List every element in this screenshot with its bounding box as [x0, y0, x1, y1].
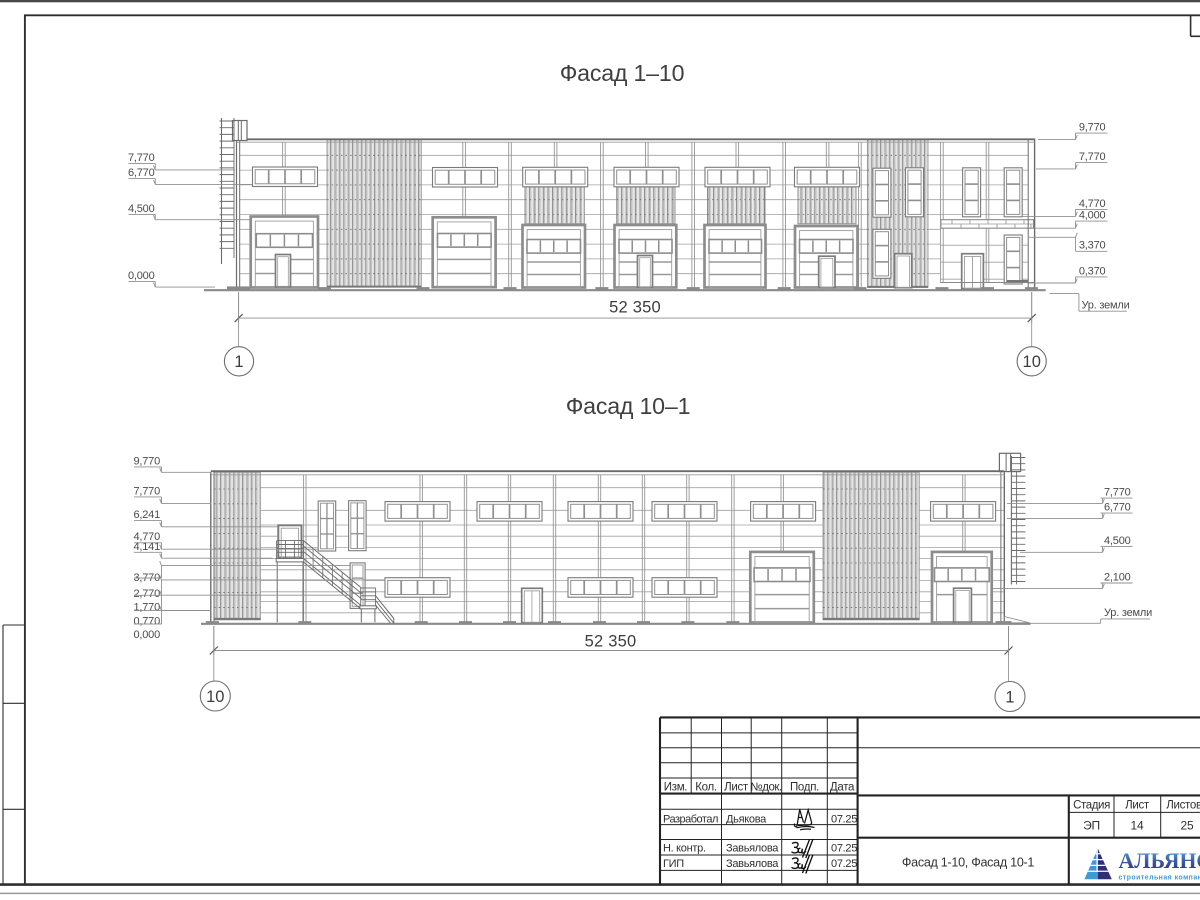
svg-text:Лист: Лист — [1125, 799, 1150, 811]
svg-text:7,770: 7,770 — [133, 485, 160, 497]
svg-text:07.25: 07.25 — [831, 843, 857, 855]
svg-text:0,370: 0,370 — [1079, 265, 1106, 277]
svg-text:ГИП: ГИП — [663, 858, 684, 870]
svg-text:1: 1 — [234, 353, 243, 371]
svg-text:Подп.: Подп. — [790, 782, 819, 794]
svg-text:Фасад 1–10: Фасад 1–10 — [560, 60, 685, 86]
svg-text:Фасад 1-10, Фасад 10-1: Фасад 1-10, Фасад 10-1 — [902, 855, 1035, 869]
svg-text:Завьялова: Завьялова — [726, 843, 779, 855]
svg-text:4,500: 4,500 — [1104, 535, 1131, 547]
svg-text:7,770: 7,770 — [128, 152, 155, 164]
svg-text:14: 14 — [1131, 819, 1144, 833]
svg-text:АЛЬЯНС: АЛЬЯНС — [1119, 849, 1200, 873]
svg-text:0,000: 0,000 — [133, 629, 160, 641]
svg-text:строительная компания: строительная компания — [1119, 874, 1200, 881]
svg-text:Кол.: Кол. — [695, 782, 717, 794]
svg-text:52 350: 52 350 — [609, 298, 661, 316]
svg-text:0,770: 0,770 — [133, 615, 160, 627]
svg-text:10: 10 — [1023, 353, 1041, 371]
svg-text:№док.: №док. — [750, 782, 781, 794]
svg-text:Изм.: Изм. — [664, 782, 688, 794]
svg-text:6,770: 6,770 — [1104, 502, 1131, 514]
svg-text:1: 1 — [1005, 689, 1014, 707]
svg-text:1,770: 1,770 — [133, 601, 160, 613]
svg-text:4,000: 4,000 — [1079, 210, 1106, 222]
svg-text:4,770: 4,770 — [1079, 198, 1106, 210]
svg-text:Н. контр.: Н. контр. — [663, 843, 706, 855]
svg-text:9,770: 9,770 — [133, 455, 160, 467]
svg-text:Лист: Лист — [724, 782, 749, 794]
svg-text:2,100: 2,100 — [1104, 571, 1131, 583]
svg-text:52 350: 52 350 — [585, 632, 637, 650]
svg-text:25: 25 — [1181, 819, 1194, 833]
svg-text:6,241: 6,241 — [133, 509, 160, 521]
svg-text:9,770: 9,770 — [1079, 122, 1106, 134]
svg-text:Стадия: Стадия — [1073, 799, 1110, 811]
svg-text:07.25: 07.25 — [831, 858, 857, 870]
svg-text:4,500: 4,500 — [128, 203, 155, 215]
svg-text:6,770: 6,770 — [128, 167, 155, 179]
svg-text:Дьякова: Дьякова — [726, 813, 767, 825]
svg-text:7,770: 7,770 — [1104, 487, 1131, 499]
svg-text:Ур. земли: Ур. земли — [1104, 607, 1152, 619]
svg-text:3,370: 3,370 — [1079, 239, 1106, 251]
svg-text:Листов: Листов — [1166, 799, 1200, 811]
svg-text:Завьялова: Завьялова — [726, 858, 779, 870]
svg-text:07.25: 07.25 — [831, 813, 857, 825]
svg-text:Ур. земли: Ур. земли — [1082, 299, 1130, 311]
svg-text:Дата: Дата — [830, 782, 855, 794]
svg-text:10: 10 — [206, 688, 224, 706]
svg-text:7,770: 7,770 — [1079, 151, 1106, 163]
svg-text:ЭП: ЭП — [1083, 819, 1100, 833]
svg-text:0,000: 0,000 — [128, 270, 155, 282]
svg-text:2,770: 2,770 — [133, 588, 160, 600]
svg-text:4,141: 4,141 — [133, 541, 160, 553]
svg-text:Фасад 10–1: Фасад 10–1 — [566, 393, 691, 419]
svg-text:Разработал: Разработал — [663, 813, 718, 825]
